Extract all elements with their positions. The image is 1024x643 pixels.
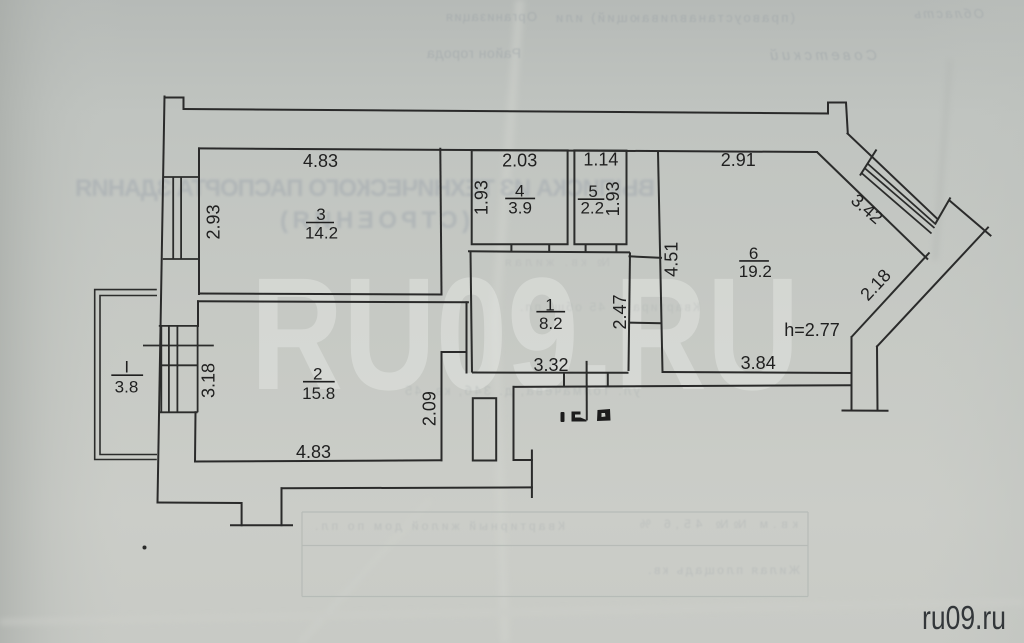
- svg-text:ru09.ru: ru09.ru: [922, 599, 1006, 636]
- svg-text:4.83: 4.83: [303, 151, 338, 171]
- svg-text:Советский: Советский: [769, 47, 877, 64]
- svg-text:3.9: 3.9: [508, 199, 532, 218]
- svg-text:8.2: 8.2: [539, 314, 563, 333]
- svg-text:3.8: 3.8: [115, 378, 139, 397]
- svg-text:2.93: 2.93: [204, 204, 224, 239]
- svg-text:15.8: 15.8: [302, 384, 335, 403]
- svg-text:1.93: 1.93: [603, 181, 623, 216]
- svg-text:4.83: 4.83: [296, 442, 331, 462]
- svg-text:3.32: 3.32: [533, 355, 568, 375]
- svg-text:ул. Толмачева, д. 34б, кв. 45: ул. Толмачева, д. 34б, кв. 45: [405, 383, 640, 398]
- svg-text:14.2: 14.2: [305, 224, 338, 243]
- svg-text:(правоустанавливающий) или: (правоустанавливающий) или: [556, 10, 795, 25]
- svg-text:Организация: Организация: [446, 9, 537, 24]
- svg-text:2.2: 2.2: [580, 199, 604, 218]
- svg-text:19.2: 19.2: [739, 262, 772, 281]
- svg-text:4.51: 4.51: [661, 242, 681, 277]
- svg-text:3.84: 3.84: [741, 353, 776, 373]
- svg-text:1.93: 1.93: [471, 180, 491, 215]
- svg-text:3: 3: [316, 205, 325, 224]
- svg-text:2.91: 2.91: [721, 150, 756, 170]
- svg-text:2.03: 2.03: [502, 151, 537, 171]
- svg-text:2: 2: [313, 364, 322, 383]
- svg-text:2.47: 2.47: [610, 294, 630, 329]
- svg-text:h=2.77: h=2.77: [784, 320, 840, 340]
- svg-text:I: I: [124, 358, 129, 377]
- svg-text:Район города: Район города: [427, 45, 521, 61]
- svg-text:3.18: 3.18: [199, 363, 219, 398]
- svg-text:1.14: 1.14: [583, 150, 618, 170]
- svg-text:2.09: 2.09: [419, 391, 439, 426]
